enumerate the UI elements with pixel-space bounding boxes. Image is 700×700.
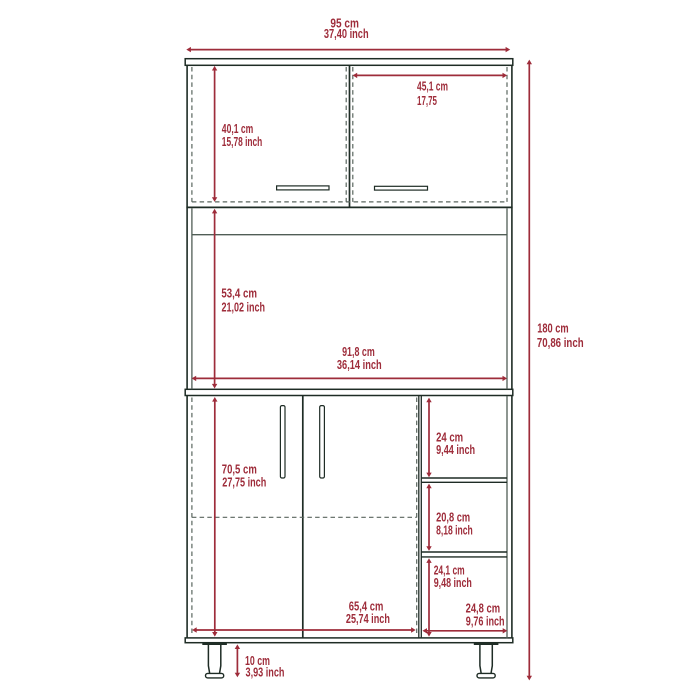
svg-text:36,14 inch: 36,14 inch xyxy=(337,357,382,372)
svg-text:9,48 inch: 9,48 inch xyxy=(434,575,472,590)
svg-text:9,44 inch: 9,44 inch xyxy=(436,442,475,457)
svg-text:45,1 cm: 45,1 cm xyxy=(417,79,448,94)
svg-text:21,02 inch: 21,02 inch xyxy=(222,299,266,314)
svg-text:25,74 inch: 25,74 inch xyxy=(346,611,390,626)
svg-text:27,75 inch: 27,75 inch xyxy=(222,475,266,490)
svg-text:17,75: 17,75 xyxy=(417,93,437,108)
svg-text:15,78 inch: 15,78 inch xyxy=(222,134,263,149)
svg-text:70,86 inch: 70,86 inch xyxy=(537,335,584,350)
svg-text:8,18 inch: 8,18 inch xyxy=(436,522,473,537)
svg-text:3,93 inch: 3,93 inch xyxy=(246,664,285,679)
svg-text:180 cm: 180 cm xyxy=(537,320,569,335)
svg-text:37,40 inch: 37,40 inch xyxy=(324,26,369,41)
svg-text:9,76 inch: 9,76 inch xyxy=(466,613,505,628)
